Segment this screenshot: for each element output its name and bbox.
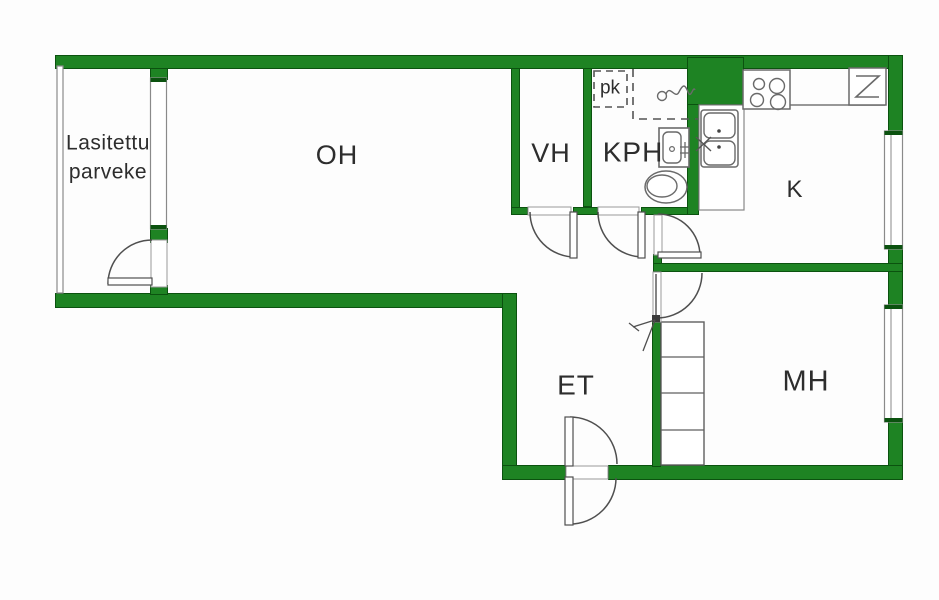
refrigerator-icon [849,68,886,105]
room-label-bathroom: KPH [603,132,664,171]
stove-icon [743,70,790,110]
room-label-balcony: Lasitettu parveke [66,129,150,188]
room-label-bedroom: MH [782,362,829,403]
washbasin-icon [659,128,690,167]
shower-mixer-icon [633,69,698,119]
balcony-door [108,240,152,285]
room-label-washer: pk [600,76,620,103]
closet-door [530,212,577,258]
door-thresholds [151,207,662,479]
kitchen-window [885,131,903,249]
floor-plan: Lasitettu parveke OH VH KPH pk K ET MH [0,0,939,600]
kitchen-door [658,214,701,258]
kitchen-sink-icon [696,110,738,167]
room-label-kitchen: K [786,173,803,207]
bedroom-window [885,305,903,422]
balcony-rail [57,66,63,293]
balcony-window [151,78,167,229]
room-label-hallway: ET [557,365,595,404]
room-label-closet: VH [531,135,571,173]
toilet-icon [645,171,687,203]
fixtures-overlay [0,0,939,600]
room-label-living-room: OH [316,137,359,175]
wardrobe [661,322,704,465]
bathroom-door [598,212,645,258]
